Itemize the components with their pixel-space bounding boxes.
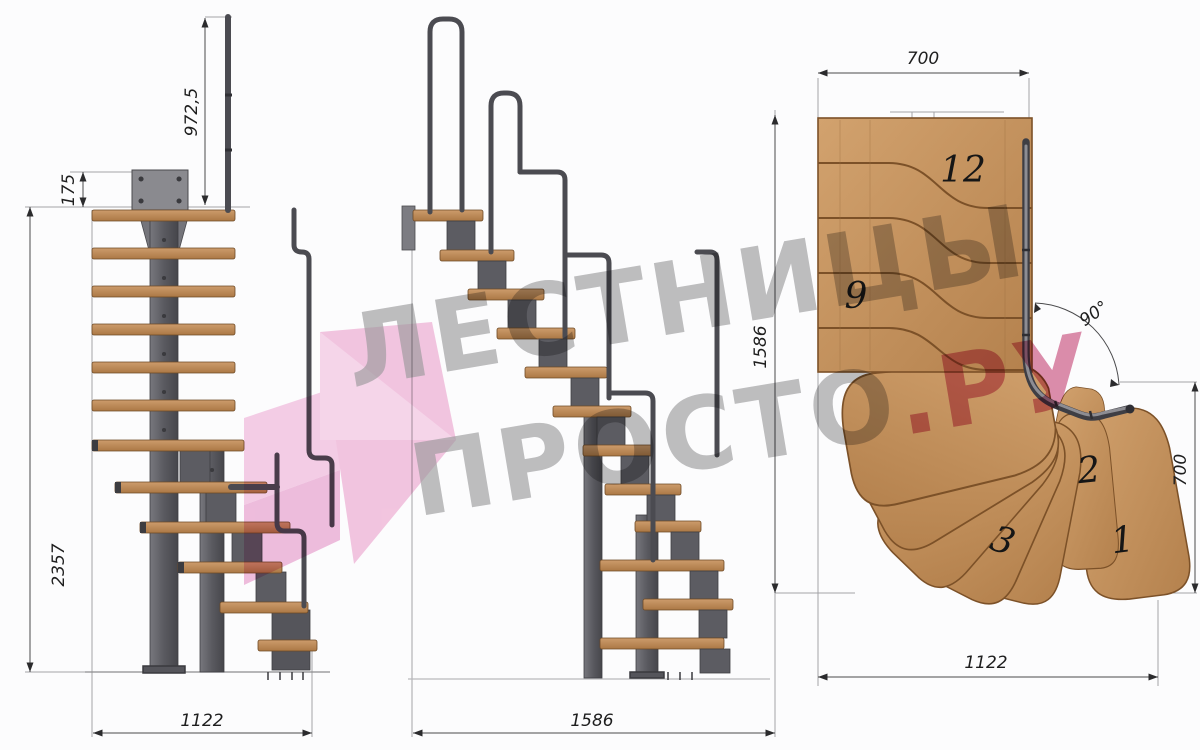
dim-label-top-offset: 175: [59, 174, 79, 206]
step: [600, 560, 724, 599]
dim-label-depth: 1586: [570, 711, 613, 731]
wall-mount-plate: [132, 170, 188, 210]
riser-module: [699, 610, 727, 638]
tread-number-12: 12: [940, 150, 986, 191]
riser-module: [180, 450, 210, 486]
dim-label-total-height: 2357: [49, 543, 69, 586]
handrail-end-cap: [1126, 405, 1135, 414]
handrail-loop: [491, 93, 520, 252]
dim-label-bottom-width: 1122: [964, 653, 1007, 673]
step: [413, 210, 483, 253]
dim-label-width: 1122: [180, 711, 223, 731]
tread-board: [92, 210, 235, 221]
tread-board: [92, 286, 235, 297]
dimensions-side-b: 1586: [413, 711, 775, 737]
riser-module: [700, 649, 730, 673]
tread-board: [635, 521, 701, 532]
tread-board: [92, 248, 235, 259]
tread-board: [413, 210, 483, 221]
tread-board: [92, 362, 235, 373]
riser-module: [690, 571, 718, 599]
dim-label-top-width: 700: [907, 49, 939, 69]
dim-label-right-depth: 700: [1171, 454, 1191, 486]
tread-board: [92, 324, 235, 335]
dim-label-rail-height: 972,5: [182, 88, 202, 137]
riser-module: [447, 221, 475, 253]
tread-board: [643, 599, 733, 610]
tread-board: [600, 560, 724, 571]
tread-board: [92, 400, 235, 411]
tread-board: [92, 440, 244, 451]
tread-board: [220, 602, 308, 613]
handrail-loop: [430, 19, 462, 212]
tread-board: [600, 638, 724, 649]
tread-board: [440, 250, 514, 261]
riser-module: [671, 532, 699, 562]
step: [600, 638, 730, 673]
tread-board: [258, 640, 317, 651]
side-view-front: 972,5 175 2357 1122: [25, 17, 332, 737]
staircase-drawing: 972,5 175 2357 1122: [0, 0, 1200, 750]
technical-drawing-page: 972,5 175 2357 1122: [0, 0, 1200, 750]
tread-number-2: 2: [1074, 449, 1102, 492]
